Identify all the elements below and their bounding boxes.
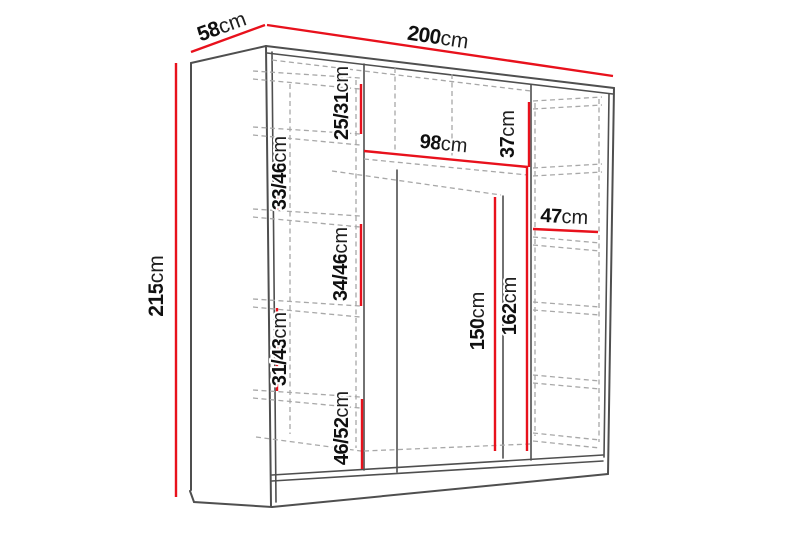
middle-floor-rear-edge <box>364 444 530 451</box>
diagram-canvas: 215cm 58cm 200cm 25/31cm 33/46cm 98cm 37… <box>0 0 800 533</box>
dim-label-width: 200cm <box>406 22 470 54</box>
dim-label-gap-top-left: 25/31cm <box>331 66 353 140</box>
right-top-underside <box>533 97 602 109</box>
dim-label-right-width: 47cm <box>540 205 589 229</box>
dim-label-gap-left-upper: 33/46cm <box>269 136 291 210</box>
front-left-edge-outer <box>266 46 271 506</box>
middle-shelf-rear-edge <box>332 171 501 195</box>
left-shelf-3 <box>253 209 360 227</box>
right-shelf-2 <box>533 237 600 251</box>
dim-label-hanging-height: 150cm <box>467 292 489 351</box>
floor-front-edge-a <box>272 455 603 475</box>
plinth-bottom-edge <box>272 474 608 507</box>
wardrobe-outline <box>190 46 614 507</box>
middle-shelf-underside <box>364 159 528 175</box>
top-front-edge-inner <box>267 53 613 94</box>
right-shelf-3 <box>533 302 600 315</box>
dim-line-right-width <box>533 229 598 232</box>
top-front-edge-outer <box>266 46 614 88</box>
dim-label-height: 215cm <box>145 255 168 317</box>
dim-label-gap-left-bottom: 46/52cm <box>331 391 353 465</box>
dim-label-side-height: 162cm <box>499 277 521 336</box>
right-shelf-4 <box>533 375 600 389</box>
dim-label-gap-left-lower: 31/43cm <box>269 312 291 386</box>
right-floor-rear-edge <box>533 433 600 448</box>
side-bottom-edge <box>190 491 272 507</box>
front-left-edge-inner <box>272 52 276 502</box>
hidden-shelf-lines <box>253 60 602 451</box>
dim-label-gap-left-middle: 34/46cm <box>330 227 352 301</box>
floor-front-edge-b <box>272 461 603 481</box>
right-shelf-1 <box>533 164 602 176</box>
top-panel-underside <box>272 60 531 91</box>
wardrobe-dimension-diagram: 215cm 58cm 200cm 25/31cm 33/46cm 98cm 37… <box>0 0 800 533</box>
dim-label-middle-width: 98cm <box>419 131 469 158</box>
dim-label-gap-right-top: 37cm <box>497 110 519 158</box>
